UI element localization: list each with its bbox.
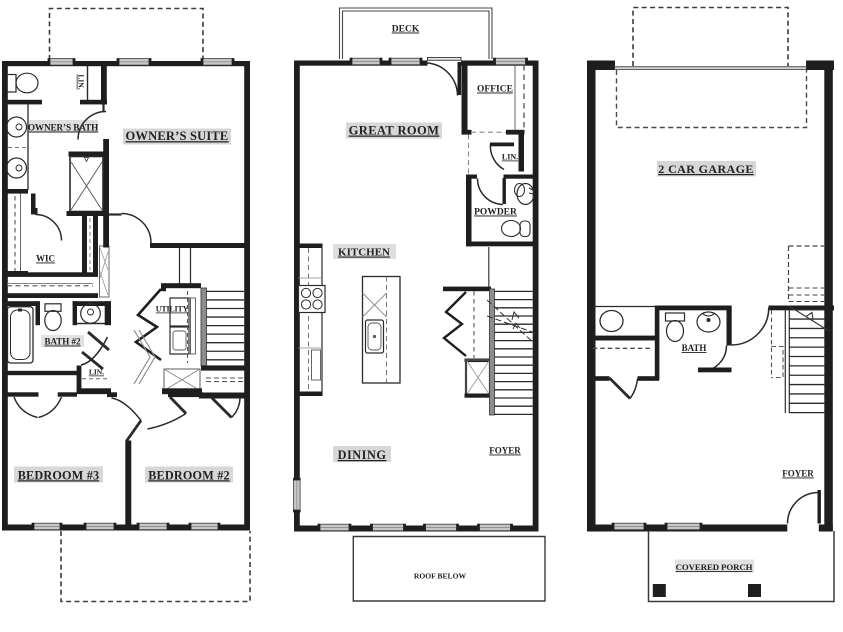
svg-text:DINING: DINING [338,448,387,462]
svg-text:FOYER: FOYER [489,446,521,456]
svg-text:WIC: WIC [36,253,55,263]
svg-text:GREAT ROOM: GREAT ROOM [349,123,440,137]
svg-text:LIN.: LIN. [77,74,86,89]
svg-text:OWNER’S BATH: OWNER’S BATH [28,122,98,132]
svg-text:LIN.: LIN. [89,367,104,376]
svg-text:COVERED PORCH: COVERED PORCH [676,562,753,572]
svg-text:ROOF BELOW: ROOF BELOW [414,572,467,581]
svg-text:POWDER: POWDER [474,208,517,218]
svg-text:FOYER: FOYER [782,469,814,479]
svg-text:BATH #2: BATH #2 [44,336,81,346]
svg-text:BEDROOM #2: BEDROOM #2 [148,468,230,482]
svg-text:BEDROOM #3: BEDROOM #3 [18,468,100,482]
svg-text:DECK: DECK [392,24,420,34]
svg-text:UTILITY: UTILITY [156,304,189,313]
svg-text:LIN.: LIN. [502,153,518,162]
svg-text:2 CAR GARAGE: 2 CAR GARAGE [658,162,753,176]
svg-text:OFFICE: OFFICE [477,85,513,95]
svg-text:BATH: BATH [682,343,707,353]
svg-text:OWNER’S SUITE: OWNER’S SUITE [126,129,229,143]
svg-text:KITCHEN: KITCHEN [338,246,390,258]
